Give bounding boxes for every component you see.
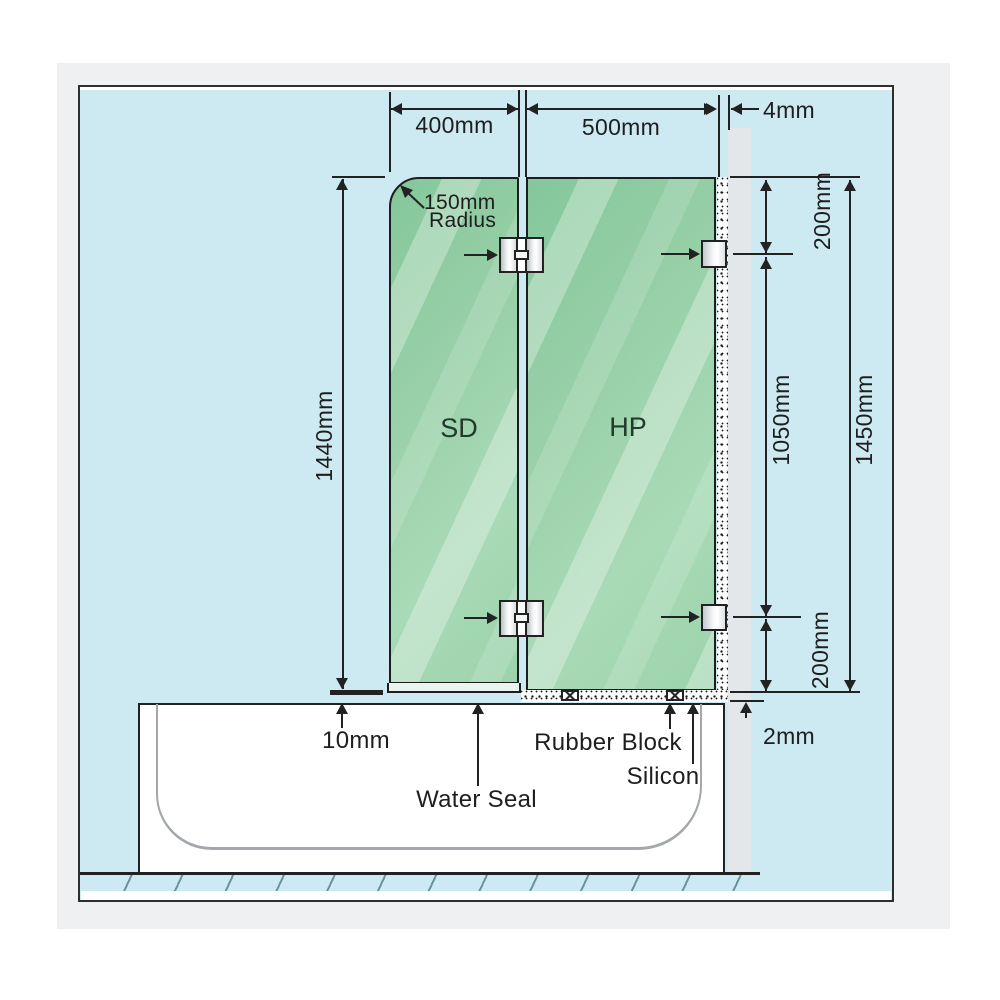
radius-word-label: Radius	[429, 209, 496, 233]
label-water-seal: Water Seal	[404, 786, 549, 814]
hinge-pin	[514, 250, 529, 260]
extension-line	[730, 691, 860, 693]
pointer-line	[661, 253, 690, 255]
pointer-line	[464, 254, 489, 256]
dim-label-door-height: 1440mm	[311, 386, 337, 486]
dim-label-panel-height: 1450mm	[852, 365, 876, 475]
arrowhead	[760, 605, 772, 616]
arrowhead	[487, 612, 498, 624]
extension-line	[728, 95, 730, 130]
panel-label-sd: SD	[429, 413, 489, 444]
arrowhead	[664, 703, 676, 714]
hinge-leaf	[527, 602, 542, 635]
reference-bar	[330, 690, 383, 695]
extension-line	[730, 176, 860, 178]
extension-line	[332, 176, 385, 178]
dim-label-wall-gap: 4mm	[763, 97, 815, 124]
arrowhead	[760, 180, 772, 191]
arrowhead	[760, 258, 772, 269]
wall-bracket-upper	[701, 240, 727, 268]
label-door-bottom-gap: 10mm	[318, 727, 394, 755]
bottom-silicon-strip	[521, 690, 728, 702]
arrowhead	[731, 103, 742, 115]
rubber-block-left	[561, 690, 579, 701]
dim-line-500	[527, 108, 715, 110]
pointer-line	[692, 706, 694, 764]
dim-label-panel-width: 500mm	[527, 114, 715, 141]
tick-line	[733, 253, 793, 255]
dim-label-hinge-bottom-offset: 200mm	[808, 605, 832, 695]
floor-hatch	[82, 875, 756, 891]
arrowhead	[760, 242, 772, 253]
arrowhead	[472, 703, 484, 714]
pointer-line	[477, 706, 479, 786]
arrowhead	[336, 179, 348, 190]
tick-line	[733, 616, 801, 618]
hinge-lower	[499, 600, 544, 637]
arrowhead	[844, 180, 856, 191]
hinge-leaf	[527, 239, 542, 271]
dim-line-400	[391, 108, 518, 110]
label-silicon: Silicon	[602, 763, 724, 791]
below-floor-band	[81, 891, 891, 900]
arrowhead	[760, 680, 772, 691]
dim-label-silicon-thickness: 2mm	[763, 723, 815, 750]
arrowhead	[689, 248, 700, 260]
arrowhead	[687, 703, 699, 714]
pointer-line	[661, 616, 690, 618]
wall-strip	[728, 128, 751, 874]
extension-line	[518, 90, 520, 177]
hinge-upper	[499, 237, 544, 273]
dim-label-hinge-spacing: 1050mm	[769, 365, 793, 475]
arrowhead	[844, 680, 856, 691]
hinge-pin	[514, 613, 529, 623]
arrowhead	[740, 702, 752, 713]
rubber-block-right	[666, 690, 684, 701]
water-seal-strip	[387, 683, 521, 693]
dim-label-door-width: 400mm	[391, 112, 518, 139]
pointer-line	[464, 617, 489, 619]
label-rubber-block: Rubber Block	[527, 729, 689, 757]
arrowhead	[689, 611, 700, 623]
arrowhead	[336, 678, 348, 689]
panel-label-hp: HP	[598, 412, 658, 443]
arrowhead	[487, 249, 498, 261]
dim-line-1440	[342, 179, 344, 689]
wall-bracket-lower	[701, 604, 727, 631]
extension-line	[718, 95, 720, 177]
page: 400mm 500mm 4mm 1440mm 200mm 1050mm 1450…	[0, 0, 1000, 1000]
arrowhead	[336, 703, 348, 714]
dim-label-hinge-top-offset: 200mm	[810, 166, 834, 256]
arrowhead	[760, 620, 772, 631]
